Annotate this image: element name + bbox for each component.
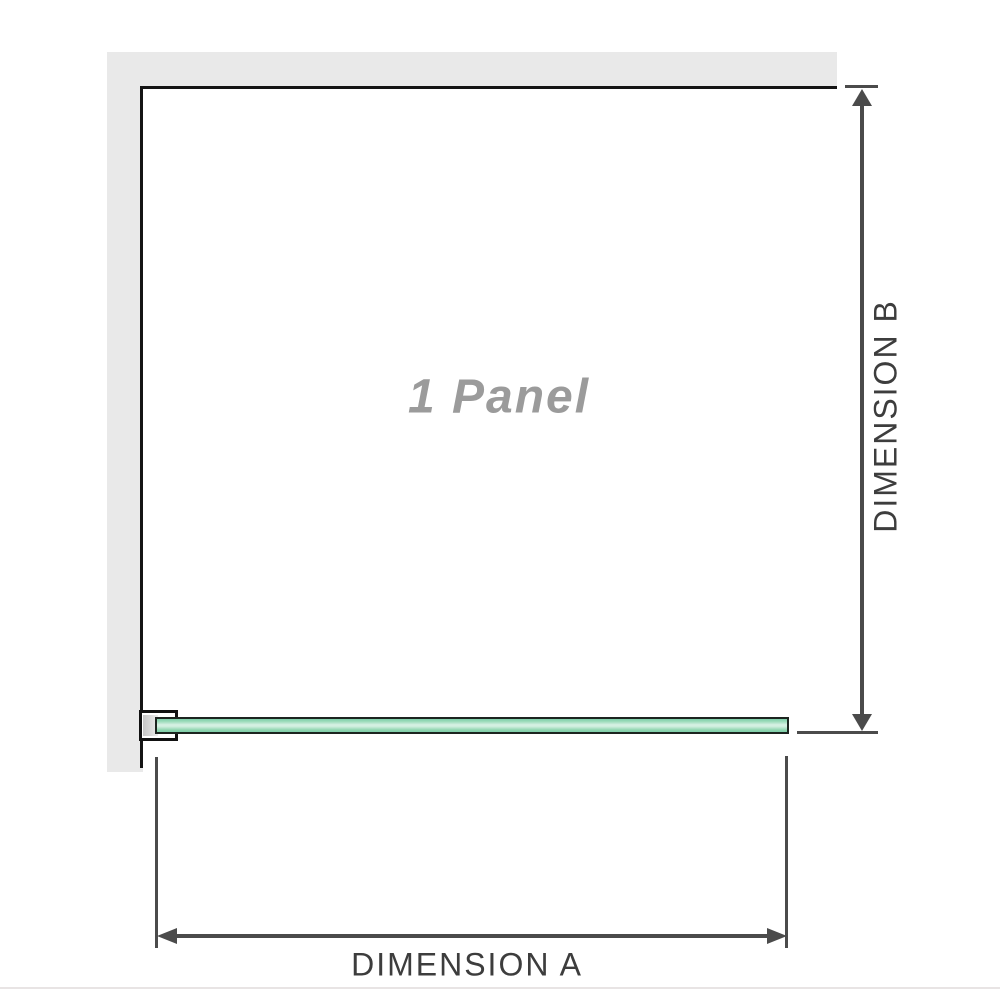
arrow-down-icon (852, 714, 872, 731)
dimension-a-left-extension (155, 757, 158, 948)
dimension-a-right-extension (785, 756, 788, 948)
dimension-a-label: DIMENSION A (351, 947, 583, 984)
arrow-right-icon (767, 928, 787, 944)
glass-panel-top-view (155, 717, 789, 734)
wall-left-strip (107, 52, 143, 772)
panel-dimension-diagram: 1 Panel DIMENSION B DIMENSION A (0, 0, 1000, 1000)
dimension-b-top-tick (845, 85, 878, 88)
panel-count-label: 1 Panel (408, 370, 590, 425)
wall-top-strip (107, 52, 837, 86)
bottom-divider-line (0, 987, 1000, 989)
dimension-b-bottom-tick (797, 731, 878, 734)
panel-outline-left (140, 86, 143, 768)
dimension-b-label: DIMENSION B (868, 299, 905, 533)
dimension-b-line (860, 99, 864, 716)
dimension-a-line (170, 934, 774, 938)
panel-outline-top (140, 86, 837, 89)
